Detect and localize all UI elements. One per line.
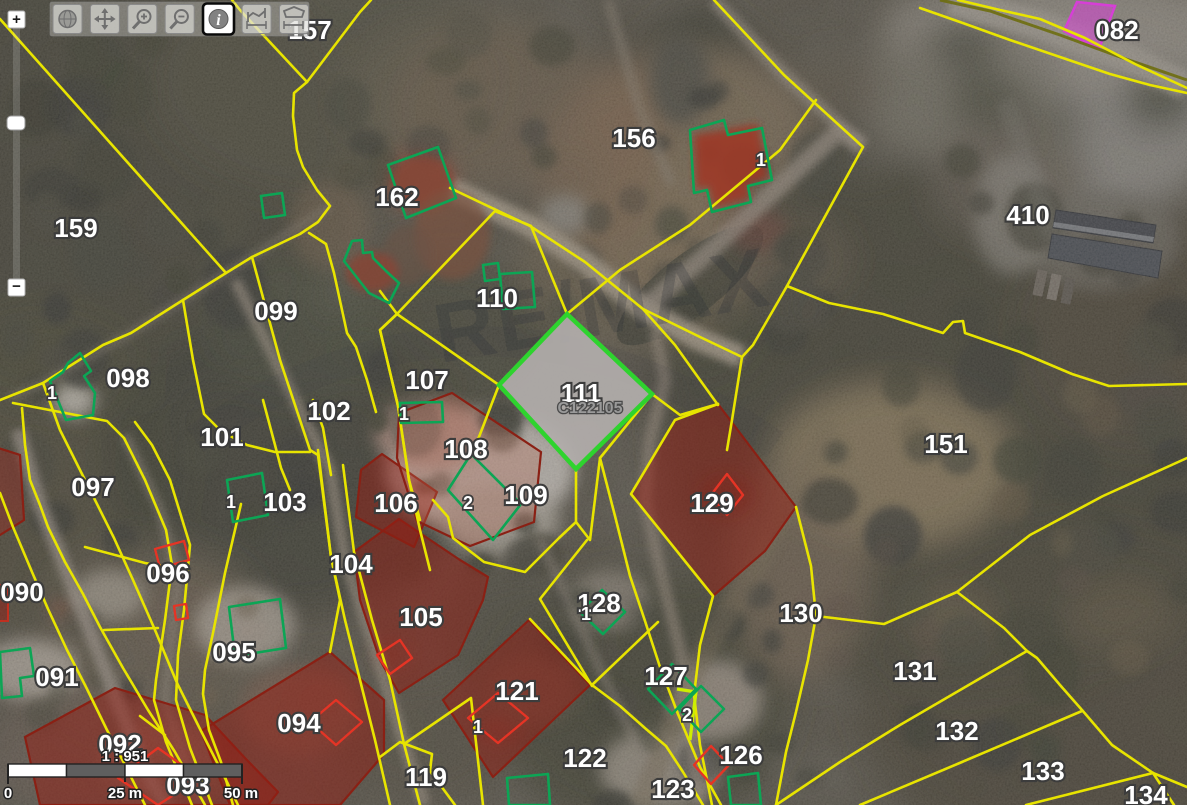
svg-text:099: 099 <box>254 296 297 326</box>
svg-text:098: 098 <box>106 363 149 393</box>
svg-text:134: 134 <box>1124 780 1168 805</box>
svg-text:50 m: 50 m <box>224 785 258 802</box>
svg-text:101: 101 <box>200 422 243 452</box>
svg-text:1: 1 <box>47 383 57 403</box>
svg-text:102: 102 <box>307 396 350 426</box>
svg-text:108: 108 <box>444 434 487 464</box>
svg-text:096: 096 <box>146 558 189 588</box>
svg-text:2: 2 <box>463 493 473 513</box>
svg-text:123: 123 <box>651 774 694 804</box>
svg-text:i: i <box>216 12 221 29</box>
svg-text:1 : 951: 1 : 951 <box>102 748 149 765</box>
svg-text:121: 121 <box>495 676 538 706</box>
svg-text:106: 106 <box>374 488 417 518</box>
svg-text:156: 156 <box>612 123 655 153</box>
svg-text:082: 082 <box>1095 15 1138 45</box>
svg-text:0: 0 <box>4 785 12 802</box>
svg-text:103: 103 <box>263 487 306 517</box>
svg-text:C122105: C122105 <box>558 400 623 417</box>
svg-text:−: − <box>12 278 21 295</box>
svg-text:107: 107 <box>405 365 448 395</box>
svg-text:131: 131 <box>893 656 936 686</box>
svg-text:097: 097 <box>71 472 114 502</box>
svg-text:1: 1 <box>581 604 591 624</box>
svg-text:110: 110 <box>476 283 518 313</box>
svg-text:129: 129 <box>690 488 733 518</box>
svg-text:104: 104 <box>329 549 373 579</box>
svg-text:+: + <box>12 11 21 28</box>
svg-text:1: 1 <box>399 404 409 424</box>
svg-text:162: 162 <box>375 182 418 212</box>
svg-text:126: 126 <box>719 740 762 770</box>
svg-text:119: 119 <box>405 762 447 792</box>
svg-text:1: 1 <box>473 717 483 737</box>
svg-text:109: 109 <box>504 480 547 510</box>
svg-text:25 m: 25 m <box>108 785 142 802</box>
svg-text:1: 1 <box>226 492 236 512</box>
svg-text:151: 151 <box>924 429 967 459</box>
svg-text:132: 132 <box>935 716 978 746</box>
svg-text:127: 127 <box>644 661 687 691</box>
svg-text:091: 091 <box>35 662 78 692</box>
svg-text:095: 095 <box>212 637 255 667</box>
svg-text:2: 2 <box>682 705 692 725</box>
svg-text:094: 094 <box>277 708 321 738</box>
svg-text:122: 122 <box>563 743 606 773</box>
svg-text:133: 133 <box>1021 756 1064 786</box>
svg-text:1: 1 <box>756 150 766 170</box>
svg-text:410: 410 <box>1006 200 1049 230</box>
svg-text:159: 159 <box>54 213 97 243</box>
svg-text:090: 090 <box>0 577 43 607</box>
svg-text:105: 105 <box>399 602 442 632</box>
svg-text:130: 130 <box>779 598 822 628</box>
